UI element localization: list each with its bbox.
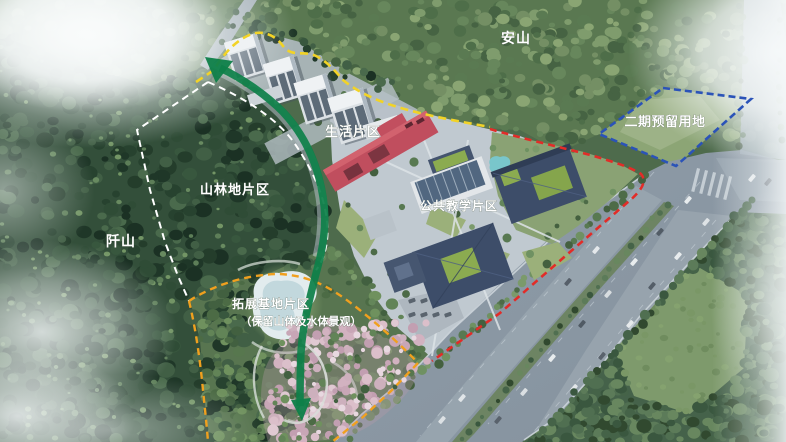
svg-text:公共教学片区: 公共教学片区 bbox=[420, 198, 498, 213]
svg-text:安山: 安山 bbox=[501, 30, 531, 46]
svg-text:拓展基地片区: 拓展基地片区 bbox=[232, 296, 310, 311]
svg-text:（保留山体及水体景观）: （保留山体及水体景观） bbox=[241, 314, 362, 328]
svg-text:阡山: 阡山 bbox=[106, 233, 136, 249]
svg-text:山林地片区: 山林地片区 bbox=[200, 182, 270, 197]
svg-text:生活片区: 生活片区 bbox=[325, 124, 381, 139]
svg-text:二期预留用地: 二期预留用地 bbox=[624, 114, 705, 129]
